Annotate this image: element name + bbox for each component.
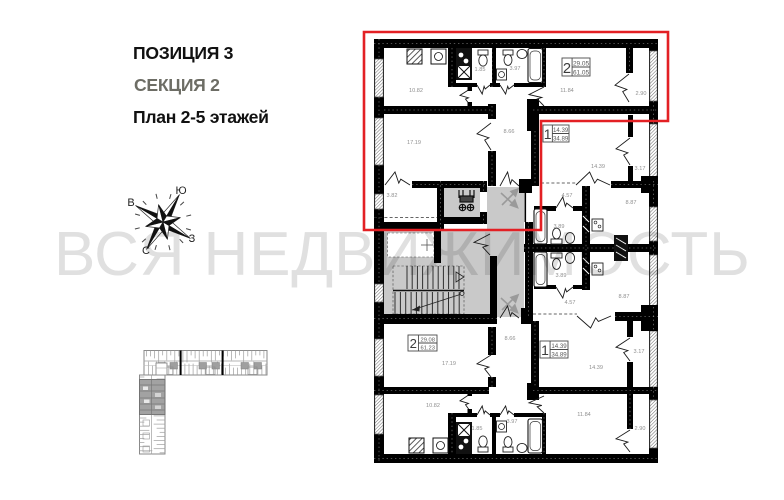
svg-text:3.17: 3.17 [635, 166, 646, 172]
svg-text:11.84: 11.84 [577, 412, 591, 418]
svg-text:14.39: 14.39 [551, 343, 567, 350]
svg-text:1: 1 [541, 342, 549, 358]
svg-text:2: 2 [563, 61, 571, 77]
svg-text:17.19: 17.19 [407, 140, 421, 146]
svg-text:10.82: 10.82 [409, 88, 423, 94]
svg-text:8.87: 8.87 [626, 200, 637, 206]
svg-text:План 2-5 этажей: План 2-5 этажей [133, 107, 269, 127]
svg-text:8.87: 8.87 [619, 294, 630, 300]
svg-text:Ю: Ю [175, 185, 186, 197]
svg-text:14.39: 14.39 [553, 127, 569, 134]
svg-text:4.57: 4.57 [562, 193, 573, 199]
svg-text:10.82: 10.82 [426, 403, 440, 409]
svg-text:11.84: 11.84 [560, 88, 574, 94]
svg-text:1: 1 [544, 126, 552, 142]
svg-text:2.90: 2.90 [636, 91, 647, 97]
svg-text:3.17: 3.17 [634, 349, 645, 355]
svg-text:2.90: 2.90 [635, 426, 646, 432]
svg-text:29.05: 29.05 [573, 61, 590, 68]
svg-text:4.57: 4.57 [565, 300, 576, 306]
svg-text:1.85: 1.85 [472, 426, 483, 432]
svg-text:14.39: 14.39 [589, 365, 603, 371]
svg-text:17.19: 17.19 [442, 361, 456, 367]
svg-text:8.66: 8.66 [505, 336, 516, 342]
svg-text:3.82: 3.82 [387, 193, 398, 199]
svg-text:В: В [127, 197, 134, 209]
svg-text:34.89: 34.89 [551, 352, 567, 359]
svg-text:61.23: 61.23 [421, 346, 435, 352]
svg-text:СЕКЦИЯ 2: СЕКЦИЯ 2 [134, 75, 220, 95]
svg-text:1.85: 1.85 [475, 67, 486, 73]
svg-text:8.66: 8.66 [504, 129, 515, 135]
svg-text:34.89: 34.89 [553, 136, 569, 143]
svg-text:3.97: 3.97 [510, 66, 521, 72]
svg-text:2: 2 [410, 336, 417, 351]
svg-text:29.08: 29.08 [421, 338, 435, 344]
svg-text:3.97: 3.97 [507, 419, 518, 425]
svg-text:14.39: 14.39 [591, 164, 605, 170]
svg-text:ПОЗИЦИЯ 3: ПОЗИЦИЯ 3 [133, 43, 234, 63]
svg-text:61.05: 61.05 [573, 70, 590, 77]
